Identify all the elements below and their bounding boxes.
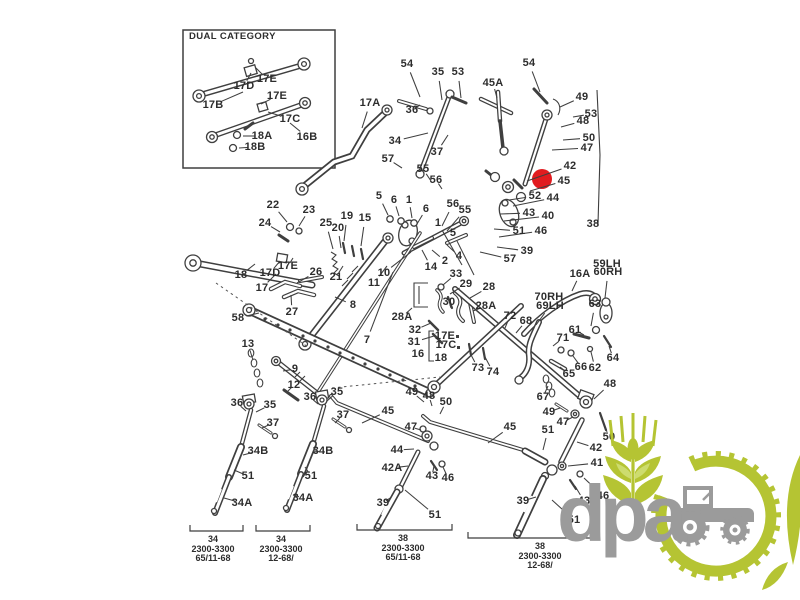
- assembly-captions-layer: 342300-330065/11-68342300-330012-68/3823…: [0, 0, 800, 600]
- assembly-caption: 342300-330012-68/: [259, 535, 302, 564]
- assembly-caption: 382300-330012-68/: [518, 542, 561, 571]
- assembly-caption: 342300-330065/11-68: [191, 535, 234, 564]
- parts-diagram: DUAL CATEGORY 17D17E17B17E17C18A16B18B54…: [0, 0, 800, 600]
- assembly-caption: 382300-330065/11-68: [381, 534, 424, 563]
